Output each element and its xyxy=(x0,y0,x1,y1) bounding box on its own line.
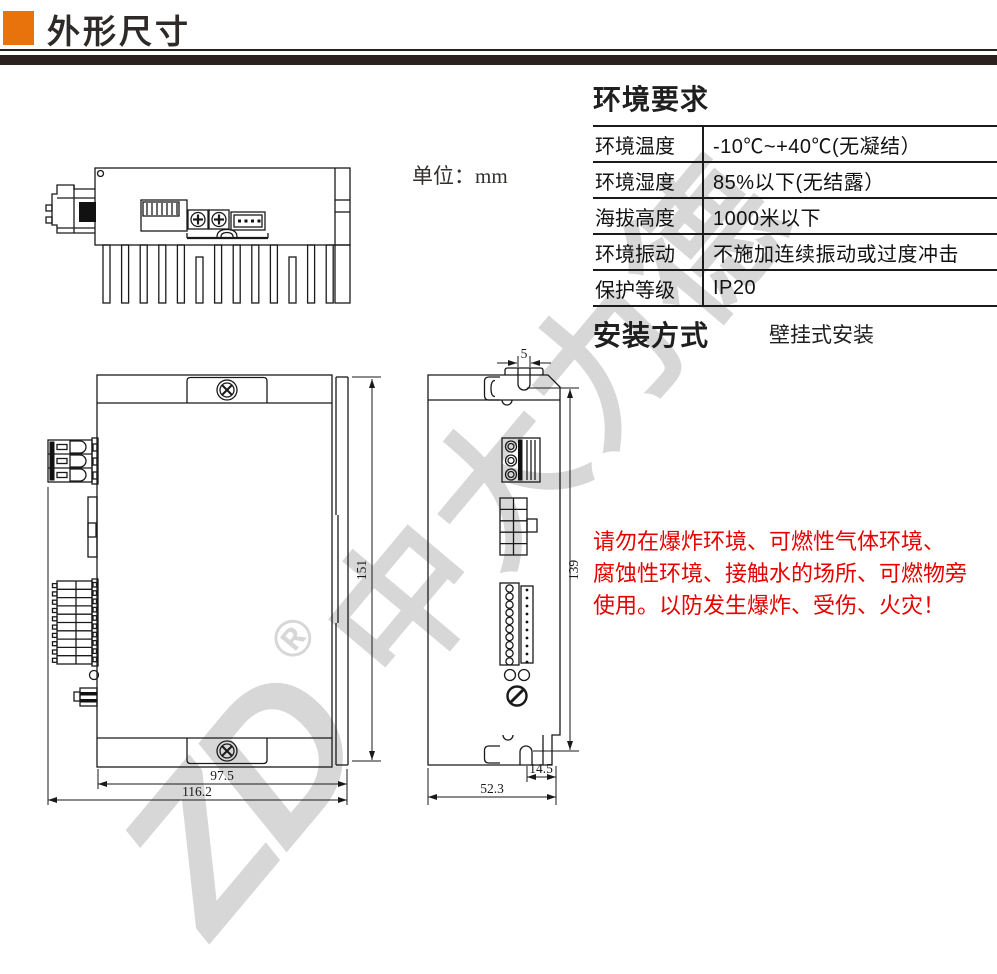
side-view-drawing xyxy=(428,368,560,765)
dim-side-slot-offset: 14.5 xyxy=(529,761,553,776)
mounting-screw-bottom xyxy=(217,741,237,761)
safety-warning: 请勿在爆炸环境、可燃性气体环境、 腐蚀性环境、接触水的场所、可燃物旁 使用。以防… xyxy=(593,526,997,622)
side-signal-terminal xyxy=(500,583,533,665)
top-view-drawing xyxy=(46,168,350,303)
warning-line: 腐蚀性环境、接触水的场所、可燃物旁 xyxy=(593,558,997,590)
potentiometer xyxy=(508,687,527,706)
side-power-terminal xyxy=(502,438,540,482)
dim-side-height: 139 xyxy=(566,560,581,581)
power-terminal-block xyxy=(48,438,98,484)
warning-line: 使用。以防发生爆炸、受伤、火灾！ xyxy=(593,590,997,622)
side-grid-connector xyxy=(500,498,537,555)
warning-line: 请勿在爆炸环境、可燃性气体环境、 xyxy=(593,526,997,558)
four-pin-connector xyxy=(231,212,265,230)
dim-front-body-width: 97.5 xyxy=(210,768,234,783)
dimension-drawings: 97.5 116.2 151 5 139 14.5 52.3 xyxy=(0,0,997,882)
mounting-screw-top xyxy=(217,380,237,400)
top-view-side-connector xyxy=(46,185,96,233)
rotary-switches xyxy=(188,210,229,229)
dimension-labels: 97.5 116.2 151 5 139 14.5 52.3 xyxy=(182,346,581,799)
dip-switch-block xyxy=(141,200,187,231)
led-indicators xyxy=(505,670,530,681)
dim-front-total-width: 116.2 xyxy=(182,784,212,799)
dim-front-height: 151 xyxy=(354,560,369,580)
front-view-drawing xyxy=(48,375,348,767)
signal-terminal-block xyxy=(53,579,99,666)
dim-side-depth: 52.3 xyxy=(480,781,504,796)
dim-side-slot: 5 xyxy=(521,346,528,361)
small-connector xyxy=(74,688,97,706)
